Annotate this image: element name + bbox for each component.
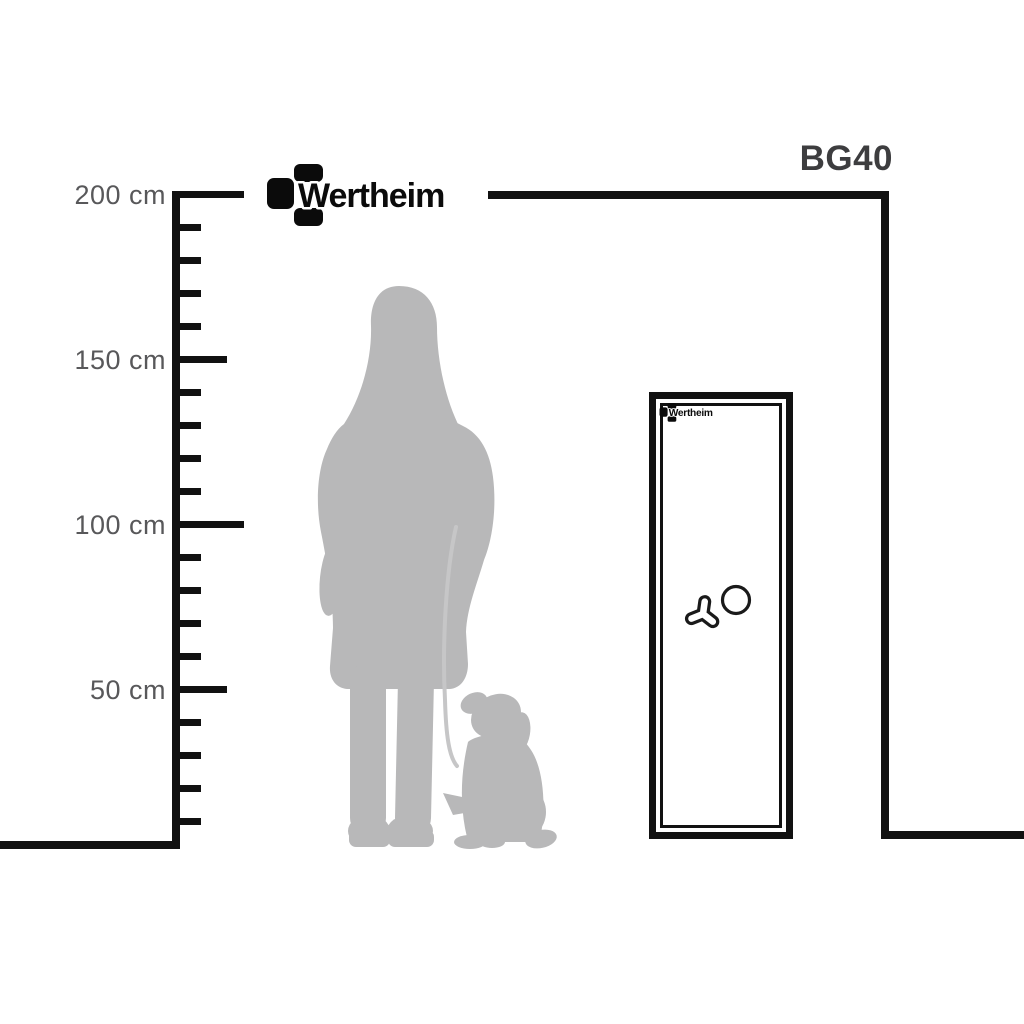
safe-knob-icon bbox=[691, 600, 715, 622]
safe-dial-icon bbox=[723, 587, 750, 614]
size-comparison-diagram: 200 cm 150 cm 100 cm 50 cm BG40 Wertheim bbox=[0, 0, 1024, 1024]
safe-logo-text: Wertheim bbox=[669, 408, 713, 419]
safe: Wertheim bbox=[649, 392, 793, 839]
safe-lock-area bbox=[675, 580, 765, 644]
dog-silhouette bbox=[443, 685, 559, 851]
woman-dog-silhouette bbox=[0, 0, 1024, 1024]
safe-brand-logo: Wertheim bbox=[658, 402, 718, 423]
